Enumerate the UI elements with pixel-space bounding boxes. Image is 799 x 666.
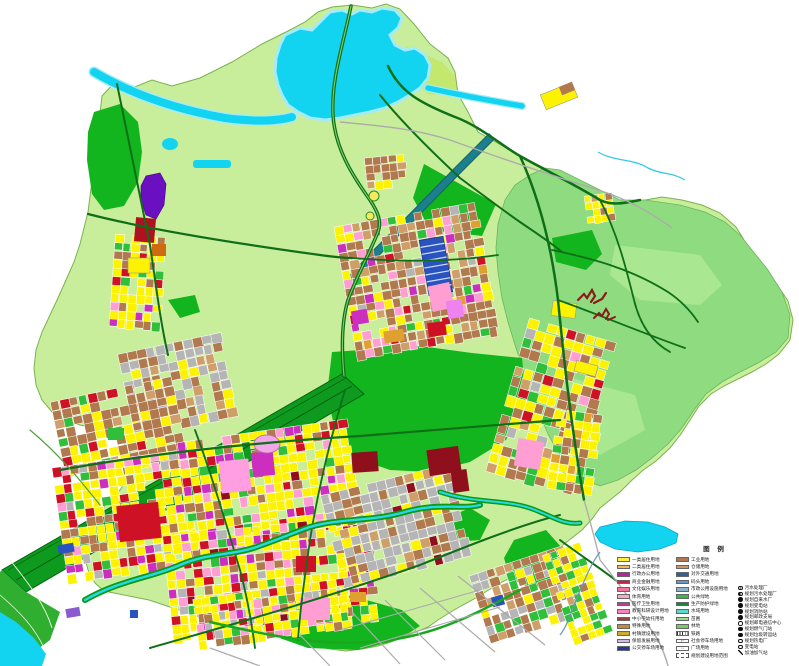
legend-item: □广场用地 <box>676 645 738 652</box>
legend-label: 二类居住用地 <box>632 564 660 570</box>
legend-item: 苗圃 <box>676 615 738 622</box>
facility-open-icon <box>738 621 743 626</box>
legend-label: 体育用地 <box>632 594 650 600</box>
legend-swatch <box>617 557 630 562</box>
legend-label: 文化娱乐用地 <box>632 586 660 592</box>
legend-column-landuse-2: 工业用地仓储用地对外交通用地码头用地市政公用设施用地公共绿地生产防护绿地水域用地… <box>676 556 738 659</box>
legend-swatch <box>676 602 689 607</box>
legend-label: 仓储用地 <box>691 564 709 570</box>
legend-label: 商业金融用地 <box>632 579 660 585</box>
legend-item: 一类居住用地 <box>617 556 676 563</box>
legend-item: 生产防护绿地 <box>676 600 738 607</box>
legend-item: 规划建设用地范围 <box>676 652 738 659</box>
legend-swatch <box>676 617 689 622</box>
legend-swatch <box>617 609 630 614</box>
legend-label: 对外交通用地 <box>691 571 719 577</box>
legend-item: 公共绿地 <box>676 593 738 600</box>
legend-swatch <box>617 565 630 570</box>
legend-swatch <box>676 631 689 636</box>
legend-item: 公交停车场用地 <box>617 645 676 652</box>
legend-item: 教育科研设计用地 <box>617 608 676 615</box>
legend-label: 教育科研设计用地 <box>632 608 669 614</box>
legend-swatch: P <box>676 639 689 644</box>
legend-label: 中小学幼托用地 <box>632 616 664 622</box>
legend-title: 图 例 <box>655 543 775 553</box>
legend-swatch: □ <box>676 646 689 651</box>
legend-item: 码头用地 <box>676 578 738 585</box>
legend-column-facilities: 污水处理厂规划污水处理厂规划自来水厂规划变电站规划消防站规划邮政支局规划邮电通信… <box>738 556 799 659</box>
legend-item: 仓储用地 <box>676 563 738 570</box>
legend-item: 中小学幼托用地 <box>617 615 676 622</box>
legend-swatch <box>676 653 689 658</box>
legend-column-landuse-1: 一类居住用地二类居住用地行政办公用地商业金融用地文化娱乐用地体育用地医疗卫生用地… <box>617 556 676 659</box>
legend-label: 行政办公用地 <box>632 571 660 577</box>
facility-open-icon <box>738 645 743 650</box>
legend-swatch <box>617 572 630 577</box>
legend-item: 体育用地 <box>617 593 676 600</box>
legend-swatch <box>676 572 689 577</box>
facility-slash-icon <box>738 650 743 655</box>
legend-label: 社会停车场用地 <box>691 638 723 644</box>
legend-item: 文化娱乐用地 <box>617 586 676 593</box>
planning-map-page: 图 例 一类居住用地二类居住用地行政办公用地商业金融用地文化娱乐用地体育用地医疗… <box>0 0 799 666</box>
legend-columns: 一类居住用地二类居住用地行政办公用地商业金融用地文化娱乐用地体育用地医疗卫生用地… <box>617 556 799 659</box>
facility-open-icon <box>738 639 743 644</box>
legend-label: 规划建设用地范围 <box>691 653 728 659</box>
legend-item: 林地 <box>676 623 738 630</box>
legend-label: 工业用地 <box>691 557 709 563</box>
legend-label: 加油加气站 <box>745 650 768 656</box>
legend-swatch <box>617 587 630 592</box>
legend-swatch <box>676 565 689 570</box>
legend-label: 特殊用地 <box>632 623 650 629</box>
legend-item: 商业金融用地 <box>617 578 676 585</box>
legend-item: 对外交通用地 <box>676 571 738 578</box>
legend-label: 林地 <box>691 623 700 629</box>
legend-label: 铁路 <box>691 631 700 637</box>
legend-label: 市政公用设施用地 <box>691 586 728 592</box>
legend-label: 一类居住用地 <box>632 557 660 563</box>
facility-filled-icon <box>738 615 743 620</box>
legend-swatch <box>676 587 689 592</box>
legend-swatch <box>617 580 630 585</box>
facility-ringdot-icon <box>738 586 743 591</box>
legend-item: 水域用地 <box>676 608 738 615</box>
legend-item: 铁路 <box>676 630 738 637</box>
legend-swatch <box>617 646 630 651</box>
legend-item: 加油加气站 <box>738 650 799 656</box>
facility-filled-icon <box>738 609 743 614</box>
legend-label: 广场用地 <box>691 645 709 651</box>
legend-item: 特殊用地 <box>617 623 676 630</box>
legend-item: 医疗卫生用地 <box>617 600 676 607</box>
legend-label: 医疗卫生用地 <box>632 601 660 607</box>
legend-swatch <box>617 624 630 629</box>
legend-item: 二类居住用地 <box>617 563 676 570</box>
legend-label: 公共绿地 <box>691 594 709 600</box>
legend-label: 保留发展用地 <box>632 638 660 644</box>
legend-label: 生产防护绿地 <box>691 601 719 607</box>
legend-label: 苗圃 <box>691 616 700 622</box>
legend-label: 码头用地 <box>691 579 709 585</box>
legend-item: 市政公用设施用地 <box>676 586 738 593</box>
legend-item: 村镇建设用地 <box>617 630 676 637</box>
legend-item: 工业用地 <box>676 556 738 563</box>
legend-swatch <box>617 594 630 599</box>
facility-filled-icon <box>738 633 743 638</box>
legend-swatch <box>617 631 630 636</box>
legend-item: 保留发展用地 <box>617 637 676 644</box>
legend-swatch <box>617 602 630 607</box>
legend-swatch <box>676 594 689 599</box>
legend-swatch <box>617 639 630 644</box>
legend-swatch <box>676 624 689 629</box>
legend-swatch <box>676 580 689 585</box>
legend-swatch <box>676 557 689 562</box>
facility-half-icon <box>738 592 743 597</box>
legend-item: 行政办公用地 <box>617 571 676 578</box>
map-legend: 图 例 一类居住用地二类居住用地行政办公用地商业金融用地文化娱乐用地体育用地医疗… <box>617 543 799 659</box>
legend-label: 公交停车场用地 <box>632 645 664 651</box>
facility-filled-icon <box>738 603 743 608</box>
legend-label: 村镇建设用地 <box>632 631 660 637</box>
legend-swatch <box>676 609 689 614</box>
facility-filled-icon <box>738 627 743 632</box>
legend-label: 水域用地 <box>691 608 709 614</box>
facility-filled-icon <box>738 597 743 602</box>
legend-swatch <box>617 617 630 622</box>
legend-item: P社会停车场用地 <box>676 637 738 644</box>
